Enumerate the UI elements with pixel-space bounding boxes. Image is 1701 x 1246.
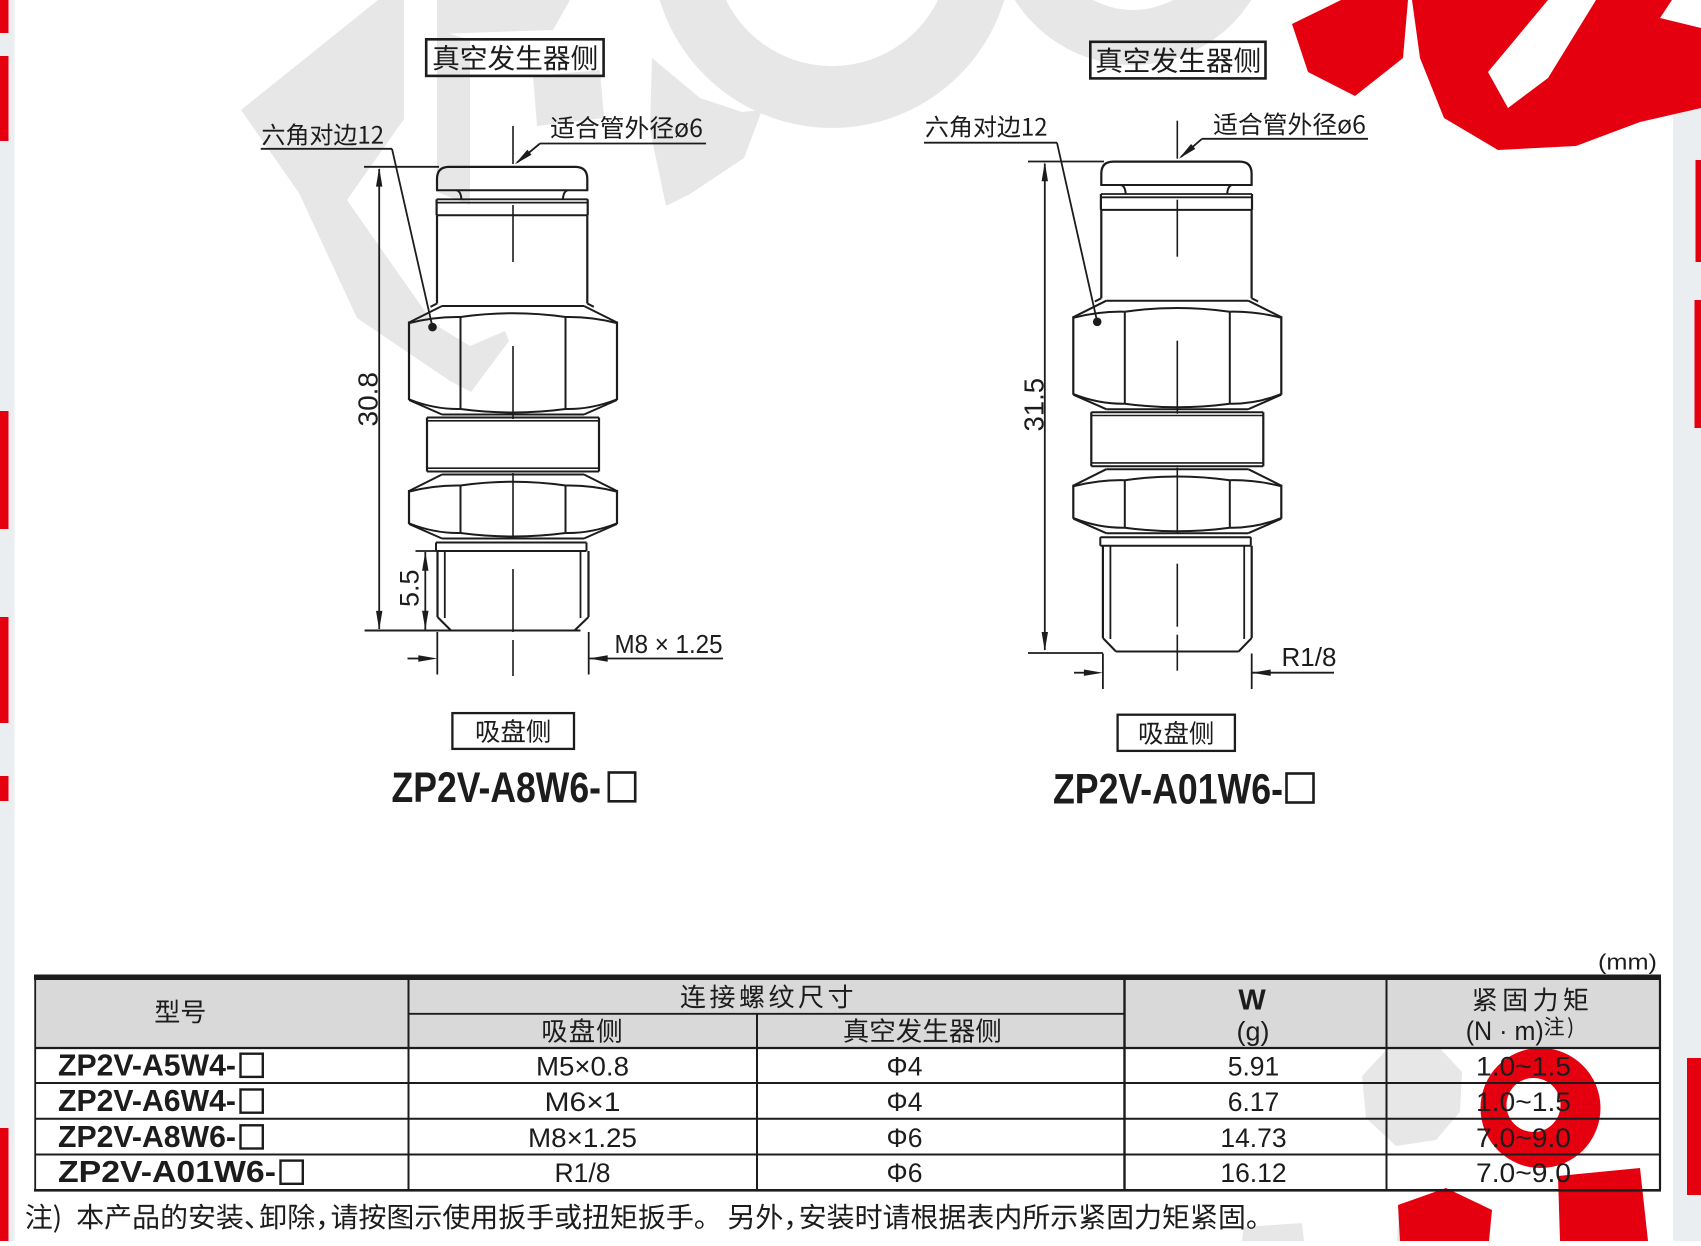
svg-text:Φ4: Φ4: [887, 1051, 923, 1081]
svg-text:5.5: 5.5: [395, 569, 425, 607]
svg-text:14.73: 14.73: [1220, 1123, 1286, 1153]
svg-text:(mm): (mm): [1598, 950, 1657, 975]
svg-text:W: W: [1238, 985, 1266, 1017]
svg-text:Φ4: Φ4: [887, 1087, 923, 1117]
svg-text:ZP2V-A6W4-: ZP2V-A6W4-: [58, 1083, 236, 1118]
svg-text:7.0~9.0: 7.0~9.0: [1476, 1123, 1571, 1153]
svg-text:1.0~1.5: 1.0~1.5: [1476, 1087, 1571, 1117]
svg-text:R1/8: R1/8: [555, 1158, 611, 1188]
svg-text:16.12: 16.12: [1220, 1158, 1286, 1188]
svg-text:31.5: 31.5: [1019, 378, 1050, 432]
svg-text:ZP2V-A8W6-: ZP2V-A8W6-: [58, 1119, 236, 1154]
svg-text:(N · m): (N · m): [1466, 1016, 1544, 1046]
svg-text:M5×0.8: M5×0.8: [536, 1051, 629, 1081]
svg-text:ZP2V-A5W4-: ZP2V-A5W4-: [58, 1047, 236, 1082]
svg-text:M6×1: M6×1: [545, 1087, 621, 1117]
svg-text:1.0~1.5: 1.0~1.5: [1476, 1051, 1571, 1081]
svg-text:ZP2V-A01W6-: ZP2V-A01W6-: [1053, 767, 1283, 814]
svg-text:R1/8: R1/8: [1282, 642, 1337, 672]
svg-text:7.0~9.0: 7.0~9.0: [1476, 1158, 1571, 1188]
svg-text:Φ6: Φ6: [887, 1158, 923, 1188]
svg-text:ZP2V-A01W6-: ZP2V-A01W6-: [58, 1154, 276, 1189]
svg-text:(g): (g): [1237, 1017, 1270, 1047]
svg-text:6.17: 6.17: [1228, 1087, 1280, 1117]
svg-text:ZP2V-A8W6-: ZP2V-A8W6-: [392, 765, 602, 812]
svg-text:Φ6: Φ6: [887, 1123, 923, 1153]
svg-text:5.91: 5.91: [1228, 1051, 1280, 1081]
svg-text:M8×1.25: M8×1.25: [528, 1123, 637, 1153]
svg-text:30.8: 30.8: [353, 372, 384, 427]
svg-text:M8 × 1.25: M8 × 1.25: [615, 629, 723, 659]
